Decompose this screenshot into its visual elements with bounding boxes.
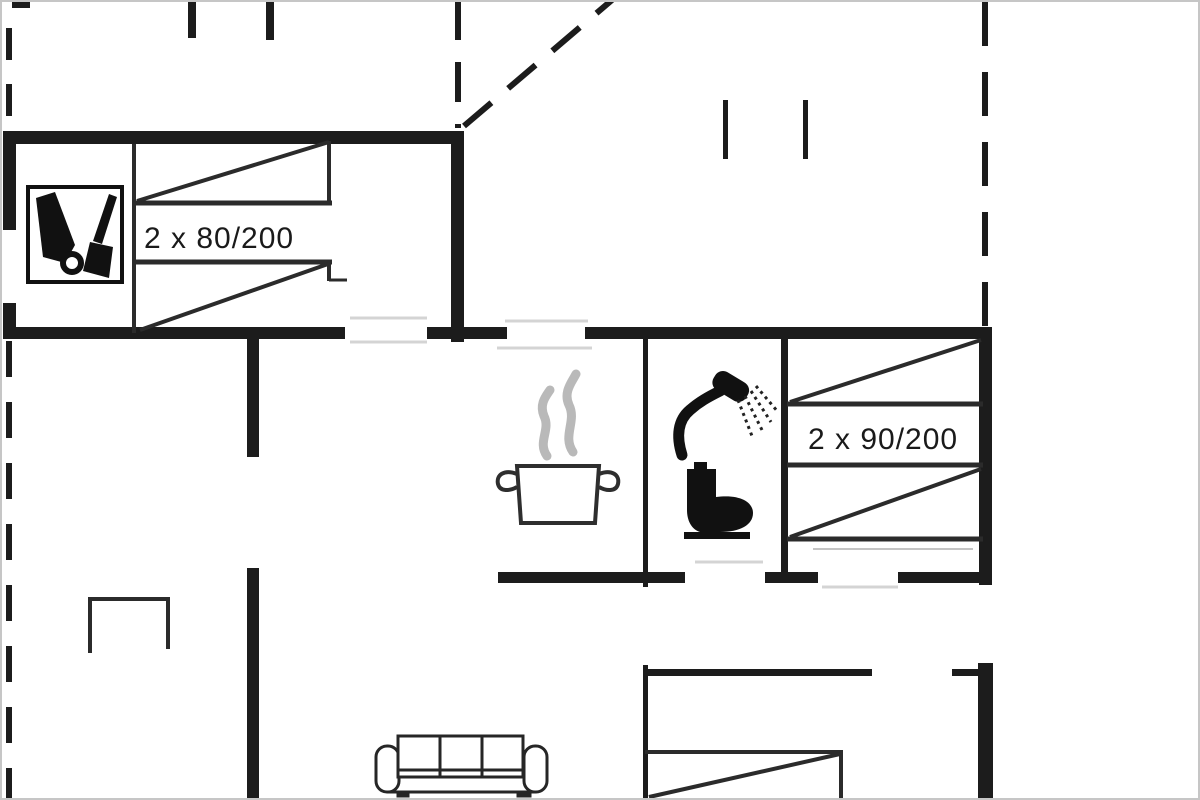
steam-wisp bbox=[567, 374, 576, 452]
wall-segment bbox=[247, 568, 259, 800]
bed-diagonal bbox=[790, 340, 981, 402]
floor-plan: 2 x 80/200 bbox=[0, 0, 1200, 800]
shower-head bbox=[709, 368, 752, 406]
toilet-base bbox=[684, 532, 750, 539]
vacuum-wheel bbox=[63, 254, 81, 272]
steam-icon bbox=[542, 374, 576, 456]
window-tick bbox=[803, 100, 808, 159]
sofa-armrest-right bbox=[524, 746, 547, 792]
bedroom-bottom-right-bed bbox=[645, 752, 843, 800]
dashed-roof-overhang-lines bbox=[9, 0, 985, 800]
wall-segment bbox=[898, 572, 985, 583]
steam-wisp bbox=[542, 390, 550, 456]
floor-plan-canvas: 2 x 80/200 bbox=[0, 0, 1200, 800]
dashed-overhang-line bbox=[464, 0, 612, 126]
toilet-flush-tab bbox=[694, 462, 707, 470]
wall-segment bbox=[498, 572, 685, 583]
bunk-bed-top bbox=[133, 141, 332, 203]
wall-segment bbox=[427, 327, 507, 339]
wall-segment bbox=[645, 669, 872, 676]
sofa-icon bbox=[376, 736, 547, 796]
shower-icon bbox=[679, 368, 778, 455]
bunk-bed-top bbox=[787, 340, 983, 404]
wall-segment bbox=[979, 331, 992, 585]
pot-body bbox=[517, 466, 599, 523]
wall-segment bbox=[247, 333, 259, 457]
wall-segment bbox=[8, 131, 458, 144]
bunk-bed-bottom bbox=[133, 262, 347, 330]
shower-hose bbox=[679, 391, 720, 455]
window-tick bbox=[266, 0, 274, 40]
pot-handle-right bbox=[599, 472, 618, 490]
spray-line bbox=[738, 400, 752, 436]
bed-diagonal bbox=[137, 142, 329, 201]
sofa-armrest-left bbox=[376, 746, 399, 792]
window-tick bbox=[723, 100, 728, 159]
cooking-pot-icon bbox=[498, 466, 619, 523]
spray-line bbox=[756, 386, 778, 412]
wall-segment bbox=[451, 131, 464, 342]
bed-size-label-right: 2 x 90/200 bbox=[808, 423, 958, 456]
wall-segment bbox=[765, 572, 818, 583]
sofa-foot bbox=[518, 792, 530, 796]
toilet-icon bbox=[684, 462, 753, 539]
wall-segment bbox=[3, 131, 16, 230]
spray-line bbox=[745, 396, 762, 430]
toilet-bowl bbox=[687, 496, 753, 532]
cleaning-cabinet-icon bbox=[28, 187, 122, 282]
wall-segment bbox=[643, 665, 648, 800]
wall-segment bbox=[781, 333, 788, 580]
bed-diagonal bbox=[790, 469, 981, 537]
fireplace-icon bbox=[90, 599, 168, 653]
image-border bbox=[1, 1, 1199, 799]
wall-segment bbox=[8, 327, 345, 339]
pot-handle-left bbox=[498, 472, 517, 490]
bed-diagonal bbox=[140, 264, 328, 330]
bed-diagonal bbox=[649, 754, 840, 797]
sofa-foot bbox=[398, 792, 408, 796]
wall-segment bbox=[978, 663, 993, 800]
wall-segment bbox=[643, 333, 648, 587]
fireplace-outline bbox=[90, 599, 168, 653]
window-tick bbox=[188, 0, 196, 38]
bunk-bed-bottom bbox=[787, 469, 983, 539]
bed-size-label-left: 2 x 80/200 bbox=[144, 222, 294, 255]
